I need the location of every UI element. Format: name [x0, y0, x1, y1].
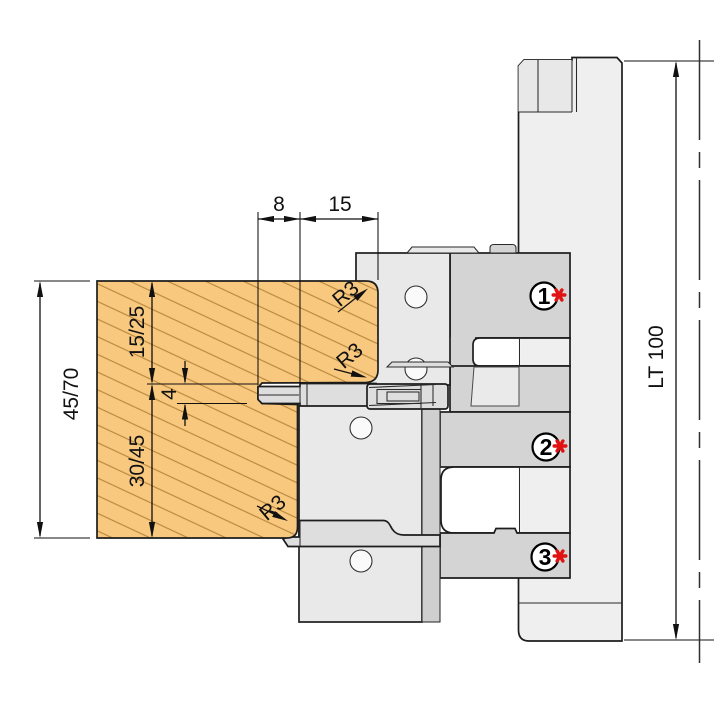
bolt-hole-3: [350, 417, 372, 439]
bolt-hole-1: [405, 286, 427, 308]
spindle-through-gullet: [521, 468, 570, 532]
marker-3-label: 3: [539, 544, 552, 570]
arrowhead: [673, 61, 679, 77]
dim-tool-length: LT 100: [645, 325, 668, 388]
arrowhead: [362, 216, 378, 222]
spindle-top-block: [519, 60, 573, 112]
bolt-hole-4: [350, 550, 372, 572]
top-hub-tab: [490, 245, 516, 254]
technical-diagram: 8 15 45/70 15/25 30/45 4 LT 100: [0, 0, 720, 720]
spindle-through-slot-a: [521, 339, 570, 365]
knife-1-edge-strip: [387, 362, 453, 367]
arrowhead: [284, 216, 300, 222]
arrowhead: [300, 216, 316, 222]
dim-upper-section: 15/25: [126, 306, 149, 359]
hub-slot-left-fill: [450, 337, 475, 367]
marker-2-label: 2: [540, 434, 553, 460]
arrowhead: [37, 281, 43, 297]
arrowhead: [673, 624, 679, 640]
dim-groove-depth: 8: [273, 193, 285, 216]
cutter-head-drawing: 8 15 45/70 15/25 30/45 4 LT 100: [0, 0, 720, 720]
arrowhead: [37, 522, 43, 538]
dim-lower-section: 30/45: [126, 435, 149, 488]
top-wedge-tab: [407, 247, 479, 253]
dim-total-thickness: 45/70: [60, 368, 83, 421]
dim-groove-width: 4: [158, 388, 181, 400]
dim-tongue-length: 15: [328, 193, 351, 216]
hub-screw-pocket: [471, 367, 519, 406]
arrowhead: [258, 216, 274, 222]
marker-1-label: 1: [538, 283, 551, 309]
bolt-hole-2: [405, 358, 427, 380]
hub-front-strip: [422, 408, 440, 622]
